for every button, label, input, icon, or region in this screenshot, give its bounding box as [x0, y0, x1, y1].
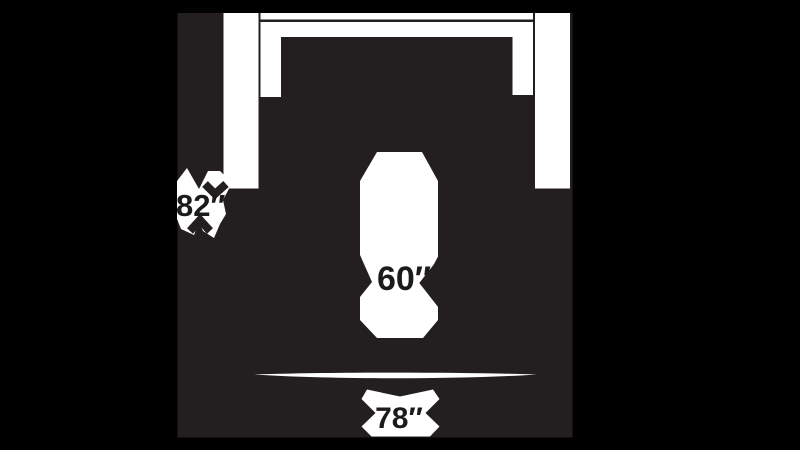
sofa-dimensions-diagram: 60″ 82″ 78″ [0, 0, 800, 450]
dimension-82-label: 82″ [176, 188, 225, 223]
dimension-60-label: 60″ [377, 260, 431, 298]
dimension-seat-width: 60″ [360, 152, 443, 338]
dimension-60-arrow-halo [360, 152, 438, 338]
screenshot-canvas: 60″ 82″ 78″ [0, 0, 800, 450]
sofa-right-arm [535, 13, 570, 189]
sofa-left-arm [224, 13, 259, 189]
sofa-back-outer-strip [261, 13, 534, 20]
dimension-78-label: 78″ [375, 402, 423, 435]
